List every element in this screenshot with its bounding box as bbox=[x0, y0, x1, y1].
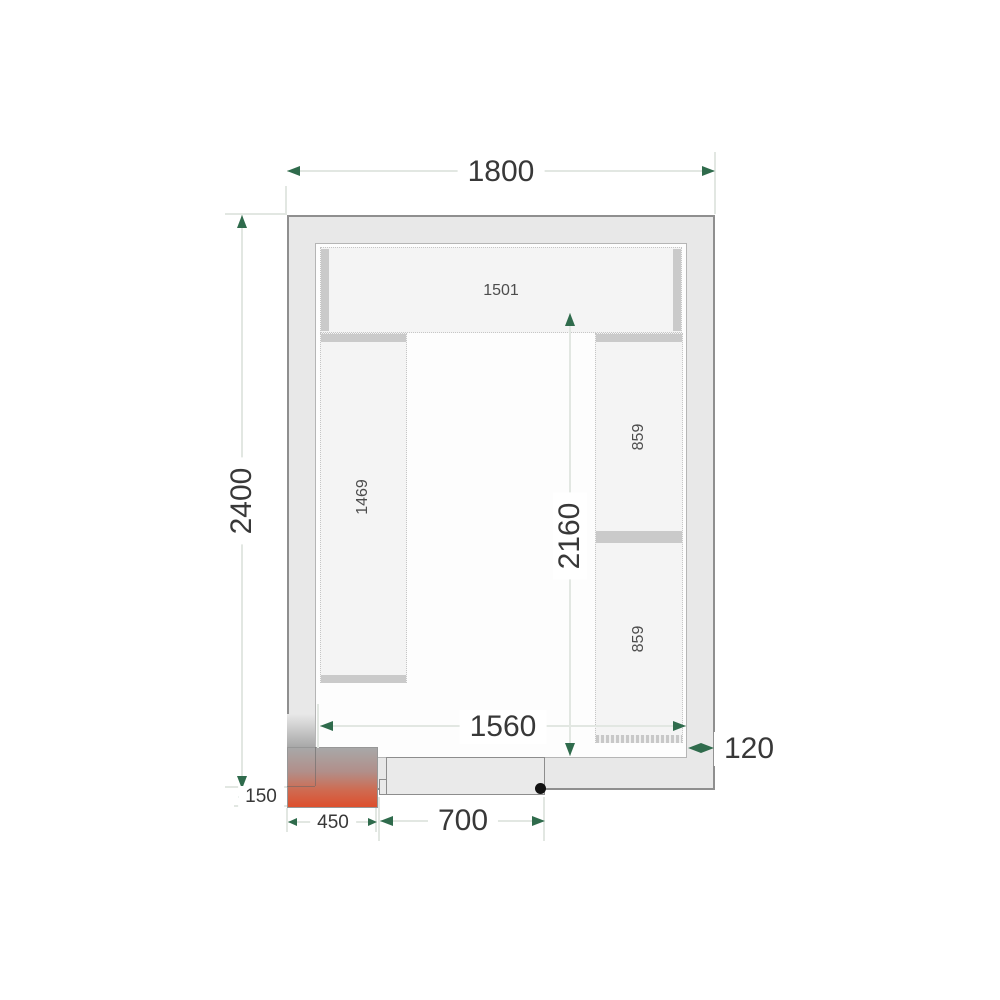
ext-line-1800-right bbox=[714, 152, 716, 214]
corner-unit-fade bbox=[287, 714, 315, 747]
wall-line-through-unit-h bbox=[287, 786, 315, 787]
shelf-right-top-edge bbox=[596, 334, 682, 342]
dim-text-panel-thickness: 120 bbox=[714, 732, 784, 766]
dim-120-arrow-left-icon bbox=[688, 743, 701, 753]
shelf-top-left-edge bbox=[321, 249, 329, 331]
shelf-right-upper-label: 859 bbox=[630, 424, 648, 451]
dim-1800-arrow-right-icon bbox=[702, 166, 715, 176]
dim-450-arrow-right-icon bbox=[368, 818, 377, 826]
dim-1800-arrow-left-icon bbox=[287, 166, 300, 176]
dim-2400-arrow-up-icon bbox=[237, 215, 247, 228]
dim-700-arrow-right-icon bbox=[532, 816, 545, 826]
dim-700-arrow-left-icon bbox=[380, 816, 393, 826]
dim-2160-arrow-down-icon bbox=[565, 743, 575, 756]
dim-text-door-opening: 700 bbox=[428, 804, 498, 838]
shelf-right-divider bbox=[596, 531, 682, 543]
corner-unit-block bbox=[287, 747, 378, 808]
wall-line-through-unit-v bbox=[315, 747, 316, 786]
dim-1560-arrow-left-icon bbox=[320, 721, 333, 731]
dim-text-interior-depth: 2160 bbox=[553, 493, 587, 580]
dim-text-overall-depth: 2400 bbox=[225, 458, 259, 545]
shelf-right-bottom-edge bbox=[596, 735, 682, 743]
door-leaf bbox=[386, 757, 545, 795]
dim-text-interior-width: 1560 bbox=[460, 710, 547, 744]
dim-text-unit-width: 450 bbox=[310, 812, 356, 834]
floor-plan-canvas: 1501 1469 859 859 bbox=[0, 0, 1000, 1000]
dim-2160-arrow-up-icon bbox=[565, 313, 575, 326]
shelf-left-label: 1469 bbox=[354, 479, 372, 515]
shelf-top-right-edge bbox=[673, 249, 681, 331]
dim-text-unit-offset: 150 bbox=[238, 786, 284, 808]
shelf-left-top-edge bbox=[321, 334, 406, 342]
dim-450-arrow-left-icon bbox=[288, 818, 297, 826]
shelf-right-lower-label: 859 bbox=[630, 626, 648, 653]
dim-1560-arrow-right-icon bbox=[673, 721, 686, 731]
door-hinge-dot bbox=[535, 783, 546, 794]
dim-text-overall-width: 1800 bbox=[458, 155, 545, 189]
dim-120-arrow-right-icon bbox=[701, 743, 714, 753]
shelf-left-bottom-edge bbox=[321, 675, 406, 683]
shelf-top-label: 1501 bbox=[483, 282, 519, 300]
ext-line-2400-top bbox=[225, 213, 287, 215]
ext-line-1800-left bbox=[285, 186, 287, 213]
ext-line-1560-left bbox=[317, 704, 319, 748]
